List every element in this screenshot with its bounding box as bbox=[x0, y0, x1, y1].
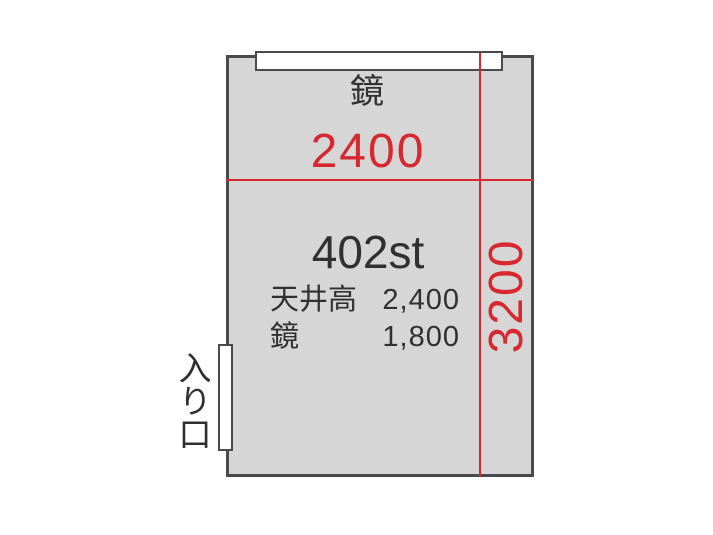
spec-ceiling-height-value: 2,400 bbox=[382, 283, 460, 317]
width-dimension-line bbox=[226, 179, 534, 181]
width-dimension-value: 2400 bbox=[268, 127, 468, 177]
mirror-label: 鏡 bbox=[330, 73, 404, 111]
entrance-opening bbox=[218, 344, 233, 451]
room-id: 402st bbox=[268, 228, 468, 276]
spec-ceiling-height-label: 天井高 bbox=[270, 283, 357, 317]
spec-mirror-width-label: 鏡 bbox=[270, 320, 299, 354]
floorplan-canvas: 鏡 2400 3200 402st 天井高 2,400 鏡 1,800 入り口 bbox=[0, 0, 713, 535]
height-dimension-value: 3200 bbox=[483, 221, 531, 371]
spec-mirror-width: 鏡 1,800 bbox=[270, 320, 460, 354]
spec-ceiling-height: 天井高 2,400 bbox=[270, 283, 460, 317]
entrance-label: 入り口 bbox=[178, 345, 216, 455]
mirror-fixture bbox=[255, 51, 503, 71]
room-specs: 天井高 2,400 鏡 1,800 bbox=[270, 283, 460, 357]
spec-mirror-width-value: 1,800 bbox=[382, 320, 460, 354]
